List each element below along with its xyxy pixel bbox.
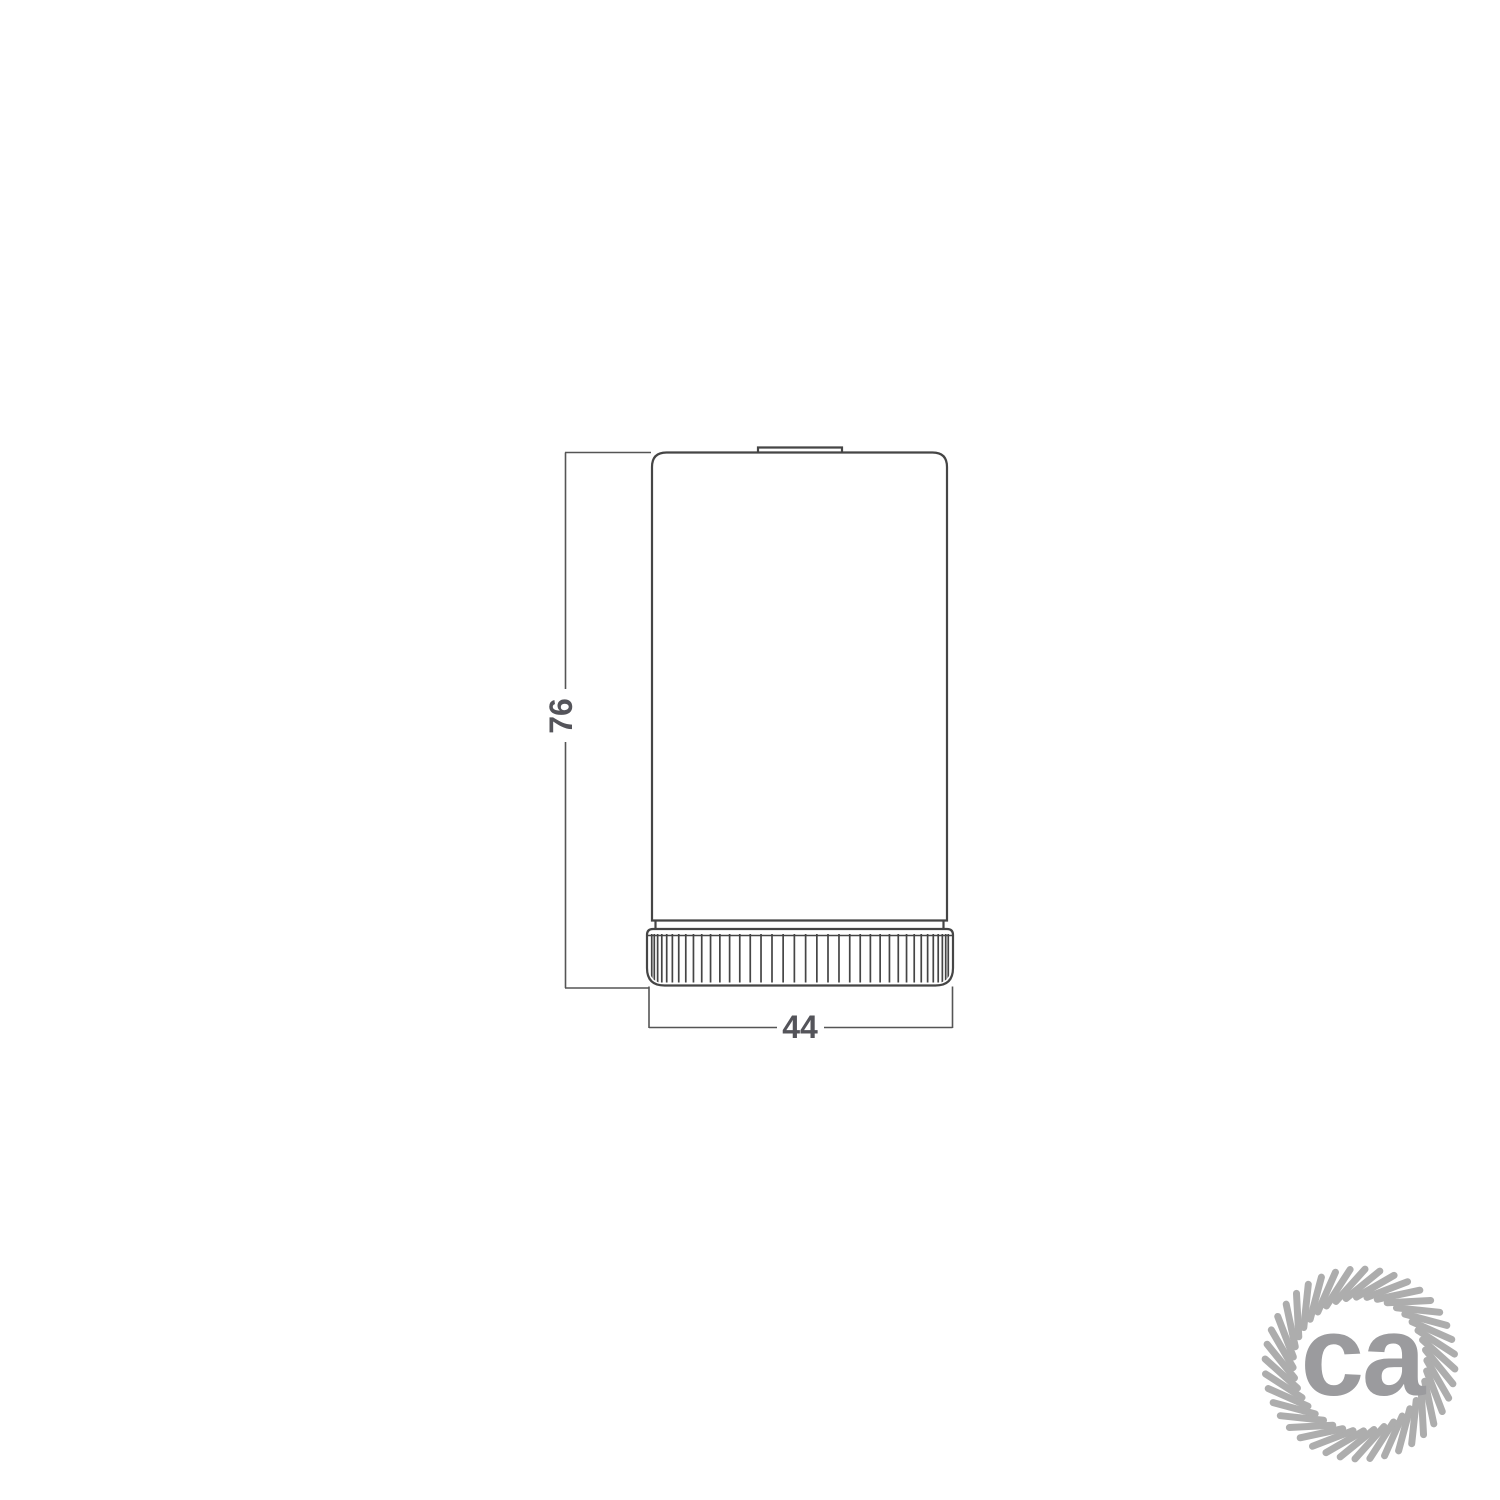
brand-logo: ca <box>1265 1269 1455 1459</box>
logo-text: ca <box>1301 1293 1427 1420</box>
height-dimension-label: 76 <box>543 698 579 734</box>
body-outline <box>652 453 947 921</box>
lampholder-outline <box>647 448 953 986</box>
technical-drawing: 76 44 ca <box>0 0 1500 1500</box>
drawing-canvas: 76 44 ca <box>0 0 1500 1500</box>
width-dimension-label: 44 <box>782 1009 818 1045</box>
